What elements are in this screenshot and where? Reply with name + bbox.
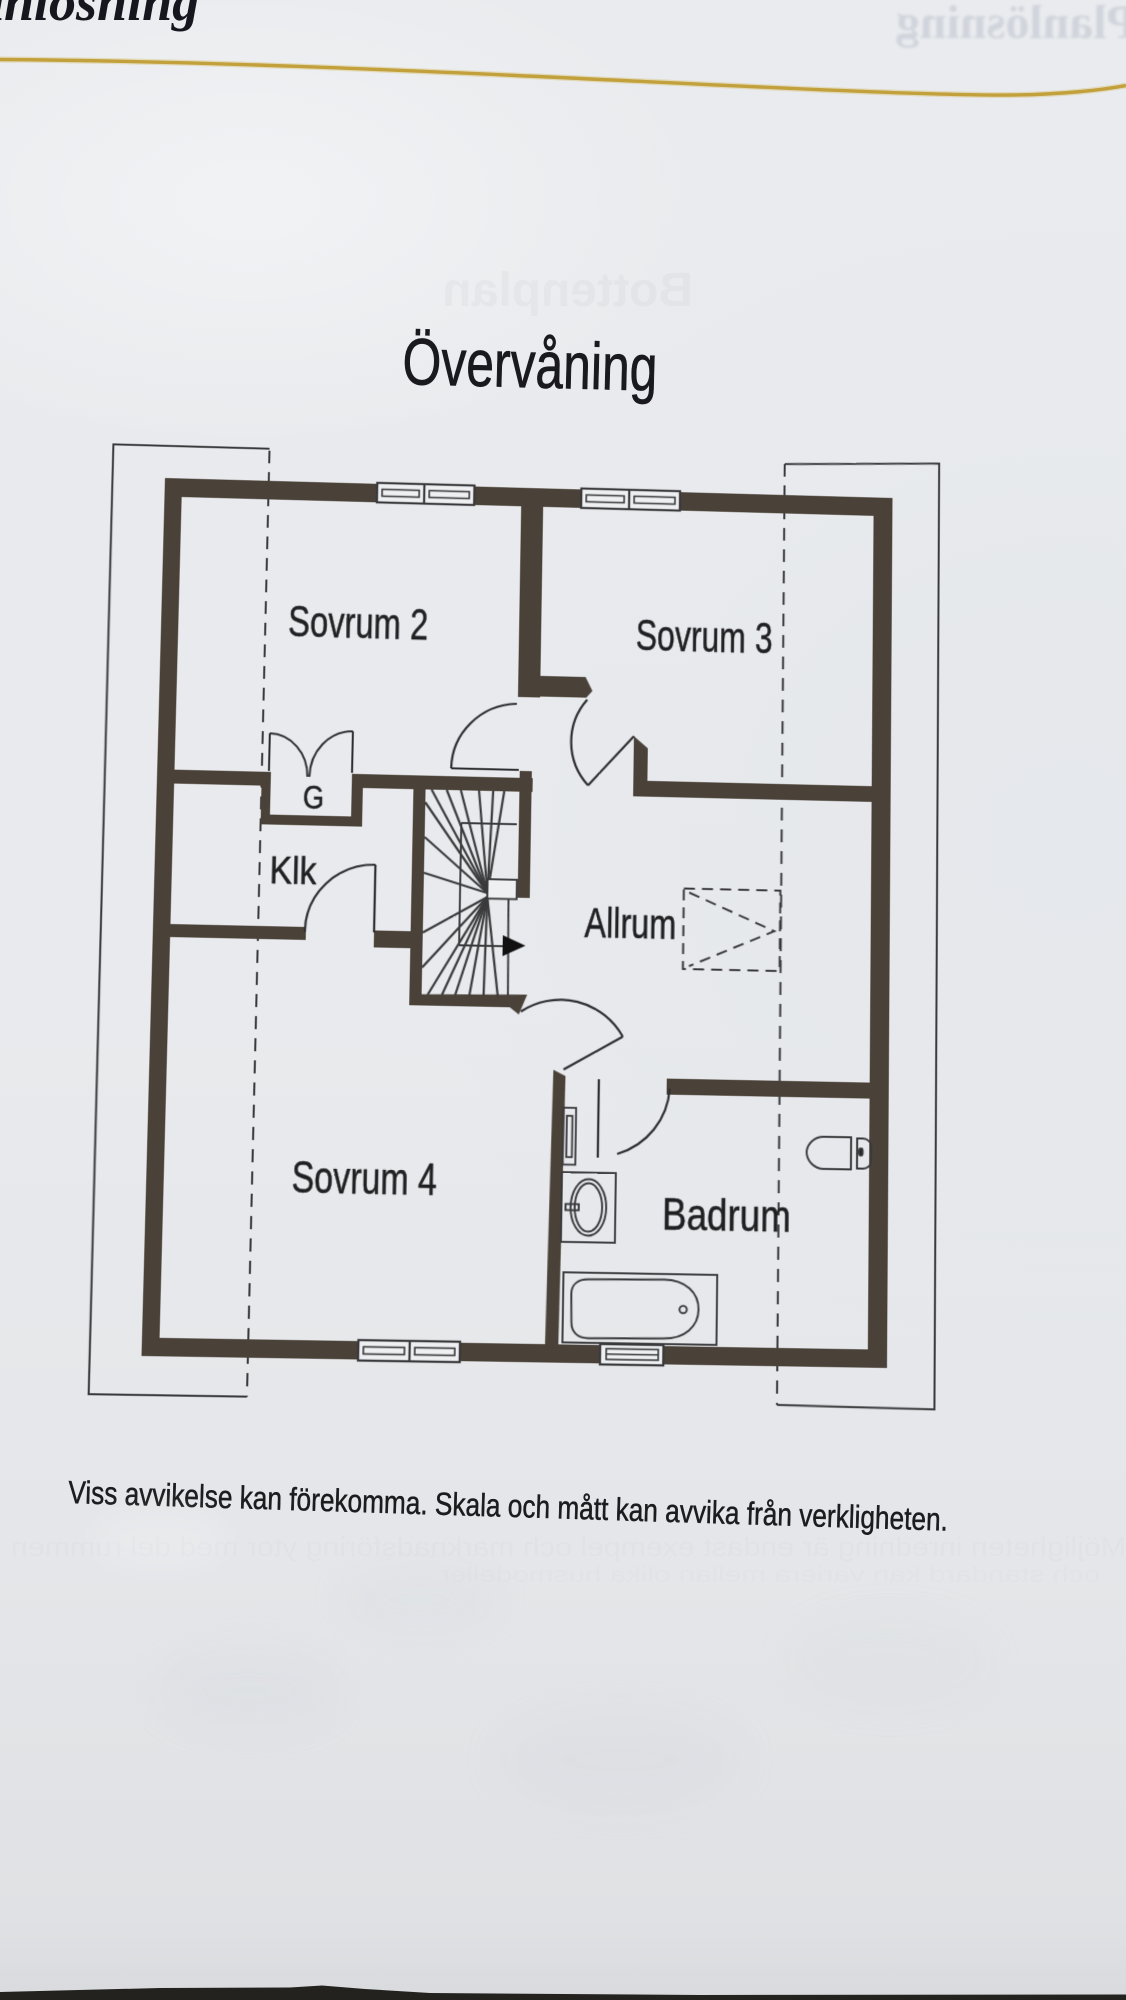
svg-text:Sovrum 4: Sovrum 4 [291,1153,437,1205]
svg-text:Planlösning: Planlösning [896,0,1126,49]
svg-text:G: G [302,780,324,818]
svg-text:Planlösning: Planlösning [0,0,199,32]
svg-text:Klk: Klk [269,849,317,892]
svg-text:Badrum: Badrum [662,1191,791,1242]
svg-text:Allrum: Allrum [584,899,676,948]
svg-text:Sovrum 3: Sovrum 3 [635,612,772,663]
svg-text:Sovrum 2: Sovrum 2 [288,598,429,649]
